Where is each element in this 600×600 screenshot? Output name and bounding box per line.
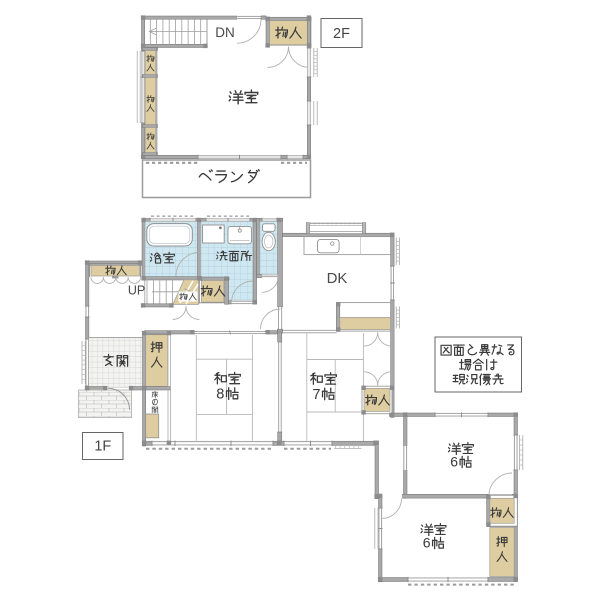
svg-text:UP: UP	[128, 283, 145, 297]
svg-text:DN: DN	[215, 25, 235, 40]
svg-text:DK: DK	[327, 270, 348, 287]
svg-text:6: 6	[423, 535, 431, 551]
svg-text:7: 7	[312, 387, 320, 403]
svg-text:1F: 1F	[94, 439, 111, 455]
svg-text:2F: 2F	[333, 26, 350, 42]
svg-text:8: 8	[216, 386, 224, 402]
svg-text:6: 6	[450, 454, 458, 470]
